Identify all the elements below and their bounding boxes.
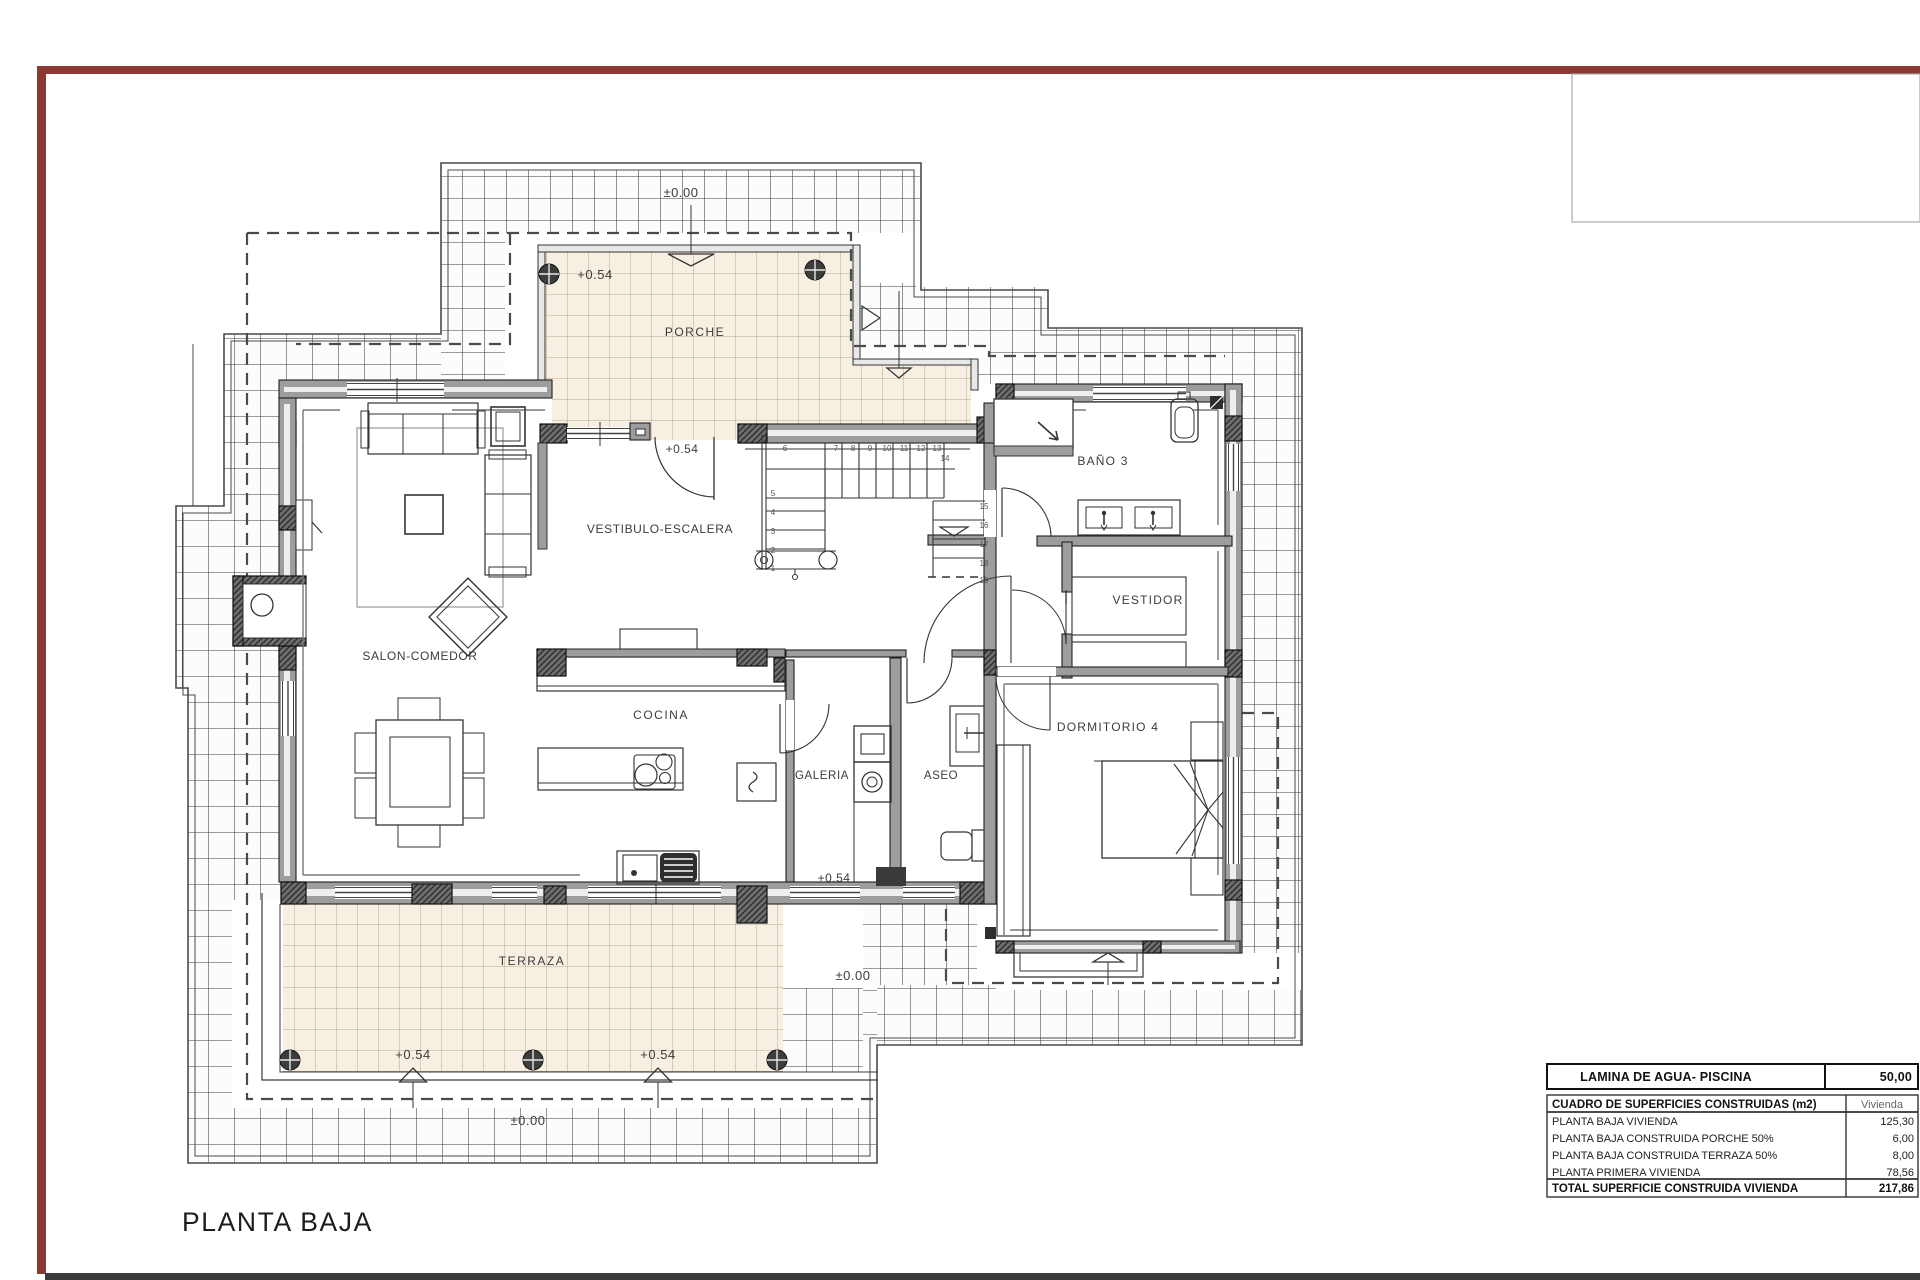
svg-text:14: 14: [941, 454, 950, 463]
svg-text:17: 17: [980, 540, 989, 549]
svg-text:217,86: 217,86: [1879, 1183, 1914, 1195]
svg-text:ASEO: ASEO: [924, 770, 958, 782]
svg-text:9: 9: [868, 444, 873, 453]
svg-text:+0.54: +0.54: [395, 1047, 430, 1062]
svg-text:50,00: 50,00: [1880, 1070, 1912, 1084]
svg-text:LAMINA DE AGUA- PISCINA: LAMINA DE AGUA- PISCINA: [1580, 1070, 1752, 1084]
svg-text:5: 5: [771, 489, 776, 498]
svg-text:PLANTA BAJA: PLANTA BAJA: [182, 1207, 373, 1237]
svg-text:13: 13: [933, 444, 942, 453]
svg-text:PLANTA BAJA VIVIENDA: PLANTA BAJA VIVIENDA: [1552, 1116, 1678, 1128]
svg-text:125,30: 125,30: [1880, 1116, 1914, 1128]
svg-text:BAÑO 3: BAÑO 3: [1077, 454, 1128, 468]
svg-text:7: 7: [834, 444, 839, 453]
svg-text:8,00: 8,00: [1893, 1150, 1914, 1162]
svg-text:10: 10: [883, 444, 892, 453]
svg-text:6,00: 6,00: [1893, 1133, 1914, 1145]
svg-text:12: 12: [917, 444, 926, 453]
svg-text:15: 15: [980, 502, 989, 511]
svg-text:+0.54: +0.54: [818, 871, 851, 885]
svg-text:DORMITORIO 4: DORMITORIO 4: [1057, 720, 1159, 734]
svg-text:78,56: 78,56: [1886, 1167, 1914, 1179]
svg-text:18: 18: [980, 559, 989, 568]
svg-text:8: 8: [851, 444, 856, 453]
svg-text:PLANTA BAJA CONSTRUIDA TERRAZA: PLANTA BAJA CONSTRUIDA TERRAZA 50%: [1552, 1150, 1777, 1162]
svg-text:TERRAZA: TERRAZA: [499, 954, 566, 968]
svg-text:SALON-COMEDOR: SALON-COMEDOR: [362, 649, 477, 663]
svg-text:VESTIDOR: VESTIDOR: [1113, 593, 1184, 607]
svg-text:16: 16: [980, 521, 989, 530]
svg-text:11: 11: [900, 444, 909, 453]
svg-text:TOTAL SUPERFICIE CONSTRUIDA VI: TOTAL SUPERFICIE CONSTRUIDA VIVIENDA: [1552, 1183, 1798, 1195]
svg-text:4: 4: [771, 508, 776, 517]
svg-text:3: 3: [771, 527, 776, 536]
svg-text:Vivienda: Vivienda: [1861, 1099, 1904, 1111]
svg-text:+0.54: +0.54: [666, 442, 699, 456]
svg-text:±0.00: ±0.00: [511, 1113, 546, 1128]
svg-text:±0.00: ±0.00: [836, 968, 871, 983]
svg-text:PLANTA PRIMERA VIVIENDA: PLANTA PRIMERA VIVIENDA: [1552, 1167, 1701, 1179]
svg-text:VESTIBULO-ESCALERA: VESTIBULO-ESCALERA: [587, 522, 733, 536]
svg-text:PORCHE: PORCHE: [665, 325, 725, 339]
svg-text:COCINA: COCINA: [633, 708, 689, 722]
svg-text:CUADRO DE SUPERFICIES CONSTRUI: CUADRO DE SUPERFICIES CONSTRUIDAS (m2): [1552, 1099, 1817, 1111]
svg-text:+0.54: +0.54: [577, 267, 612, 282]
svg-text:+0.54: +0.54: [640, 1047, 675, 1062]
svg-text:GALERIA: GALERIA: [795, 770, 849, 782]
svg-text:6: 6: [783, 444, 788, 453]
svg-text:PLANTA BAJA CONSTRUIDA PORCHE: PLANTA BAJA CONSTRUIDA PORCHE 50%: [1552, 1133, 1774, 1145]
svg-text:±0.00: ±0.00: [664, 185, 699, 200]
